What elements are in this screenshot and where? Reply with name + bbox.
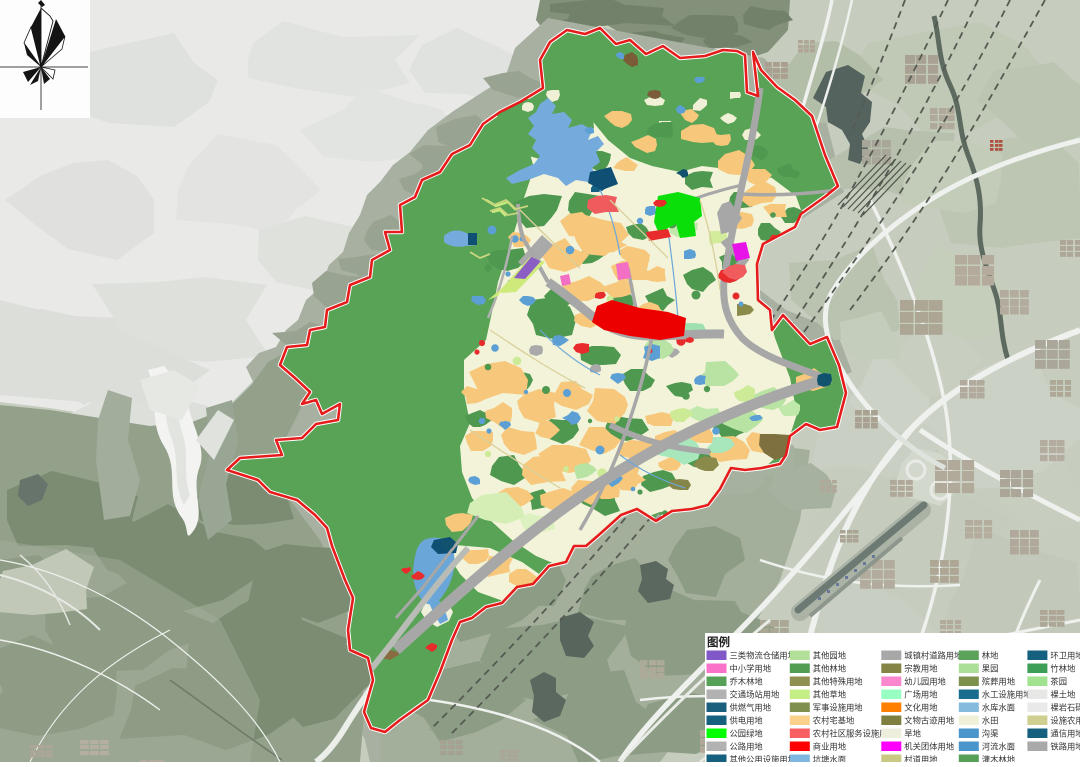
svg-text:交通场站用地: 交通场站用地	[730, 690, 780, 700]
svg-text:裸土地: 裸土地	[1050, 690, 1075, 700]
svg-text:村道用地: 村道用地	[904, 755, 937, 763]
svg-text:广场用地: 广场用地	[904, 690, 937, 700]
svg-text:公路用地: 公路用地	[730, 742, 763, 752]
svg-text:文化用地: 文化用地	[904, 703, 937, 713]
svg-text:图例: 图例	[707, 635, 730, 649]
svg-text:水库水面: 水库水面	[982, 703, 1015, 713]
svg-text:其他特殊用地: 其他特殊用地	[813, 677, 863, 687]
svg-text:供燃气用地: 供燃气用地	[730, 703, 772, 713]
svg-text:果园: 果园	[982, 664, 999, 674]
svg-text:军事设施用地: 军事设施用地	[813, 703, 863, 713]
svg-text:机关团体用地: 机关团体用地	[904, 742, 954, 752]
svg-text:城镇村道路用地: 城镇村道路用地	[904, 651, 962, 661]
svg-text:水田: 水田	[982, 716, 999, 726]
svg-text:环卫用地: 环卫用地	[1050, 651, 1080, 661]
svg-text:三类物流仓储用地: 三类物流仓储用地	[730, 651, 796, 661]
svg-text:乔木林地: 乔木林地	[730, 677, 763, 687]
svg-text:水工设施用地: 水工设施用地	[982, 690, 1032, 700]
svg-text:文物古迹用地: 文物古迹用地	[904, 716, 954, 726]
svg-text:公园绿地: 公园绿地	[730, 729, 763, 739]
svg-text:裸岩石砾地: 裸岩石砾地	[1050, 703, 1080, 713]
svg-text:商业用地: 商业用地	[813, 742, 846, 752]
svg-text:铁路用地: 铁路用地	[1050, 742, 1080, 752]
svg-text:旱地: 旱地	[904, 729, 921, 739]
svg-text:其他草地: 其他草地	[813, 690, 846, 700]
svg-text:宗教用地: 宗教用地	[904, 664, 937, 674]
svg-text:供电用地: 供电用地	[730, 716, 763, 726]
svg-text:沟渠: 沟渠	[982, 729, 999, 739]
svg-text:殡葬用地: 殡葬用地	[982, 677, 1015, 687]
svg-text:农村宅基地: 农村宅基地	[813, 716, 855, 726]
svg-text:河流水面: 河流水面	[982, 742, 1015, 752]
svg-text:竹林地: 竹林地	[1050, 664, 1075, 674]
svg-text:中小学用地: 中小学用地	[730, 664, 772, 674]
svg-text:灌木林地: 灌木林地	[982, 755, 1015, 763]
svg-text:其他公用设施用地: 其他公用设施用地	[730, 755, 796, 763]
svg-text:通信用地: 通信用地	[1050, 729, 1080, 739]
svg-text:林地: 林地	[982, 651, 999, 661]
svg-text:其他林地: 其他林地	[813, 664, 846, 674]
svg-text:茶园: 茶园	[1050, 677, 1067, 687]
svg-text:其他园地: 其他园地	[813, 651, 846, 661]
svg-text:幼儿园用地: 幼儿园用地	[904, 677, 946, 687]
svg-text:设施农用地: 设施农用地	[1050, 716, 1080, 726]
svg-text:坑塘水面: 坑塘水面	[813, 755, 846, 763]
